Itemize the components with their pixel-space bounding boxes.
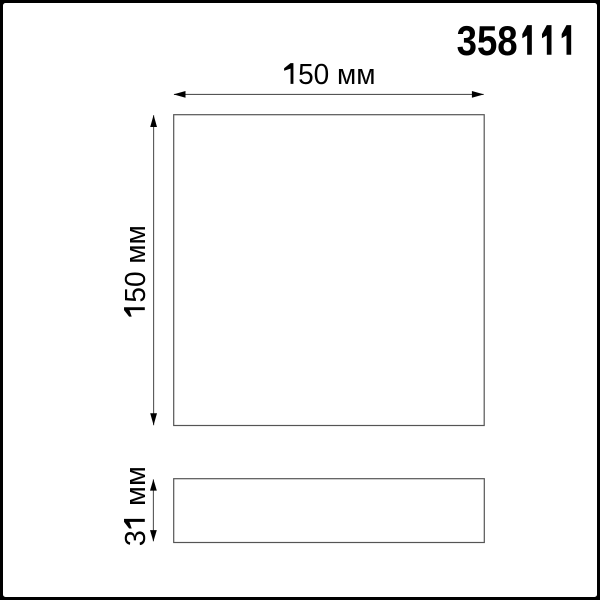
svg-text:3: 3 bbox=[120, 530, 152, 546]
svg-text:358: 358 bbox=[457, 19, 518, 65]
svg-text:50 мм: 50 мм bbox=[119, 225, 152, 302]
svg-text:50 мм: 50 мм bbox=[298, 58, 375, 91]
svg-text:мм: мм bbox=[120, 466, 152, 514]
